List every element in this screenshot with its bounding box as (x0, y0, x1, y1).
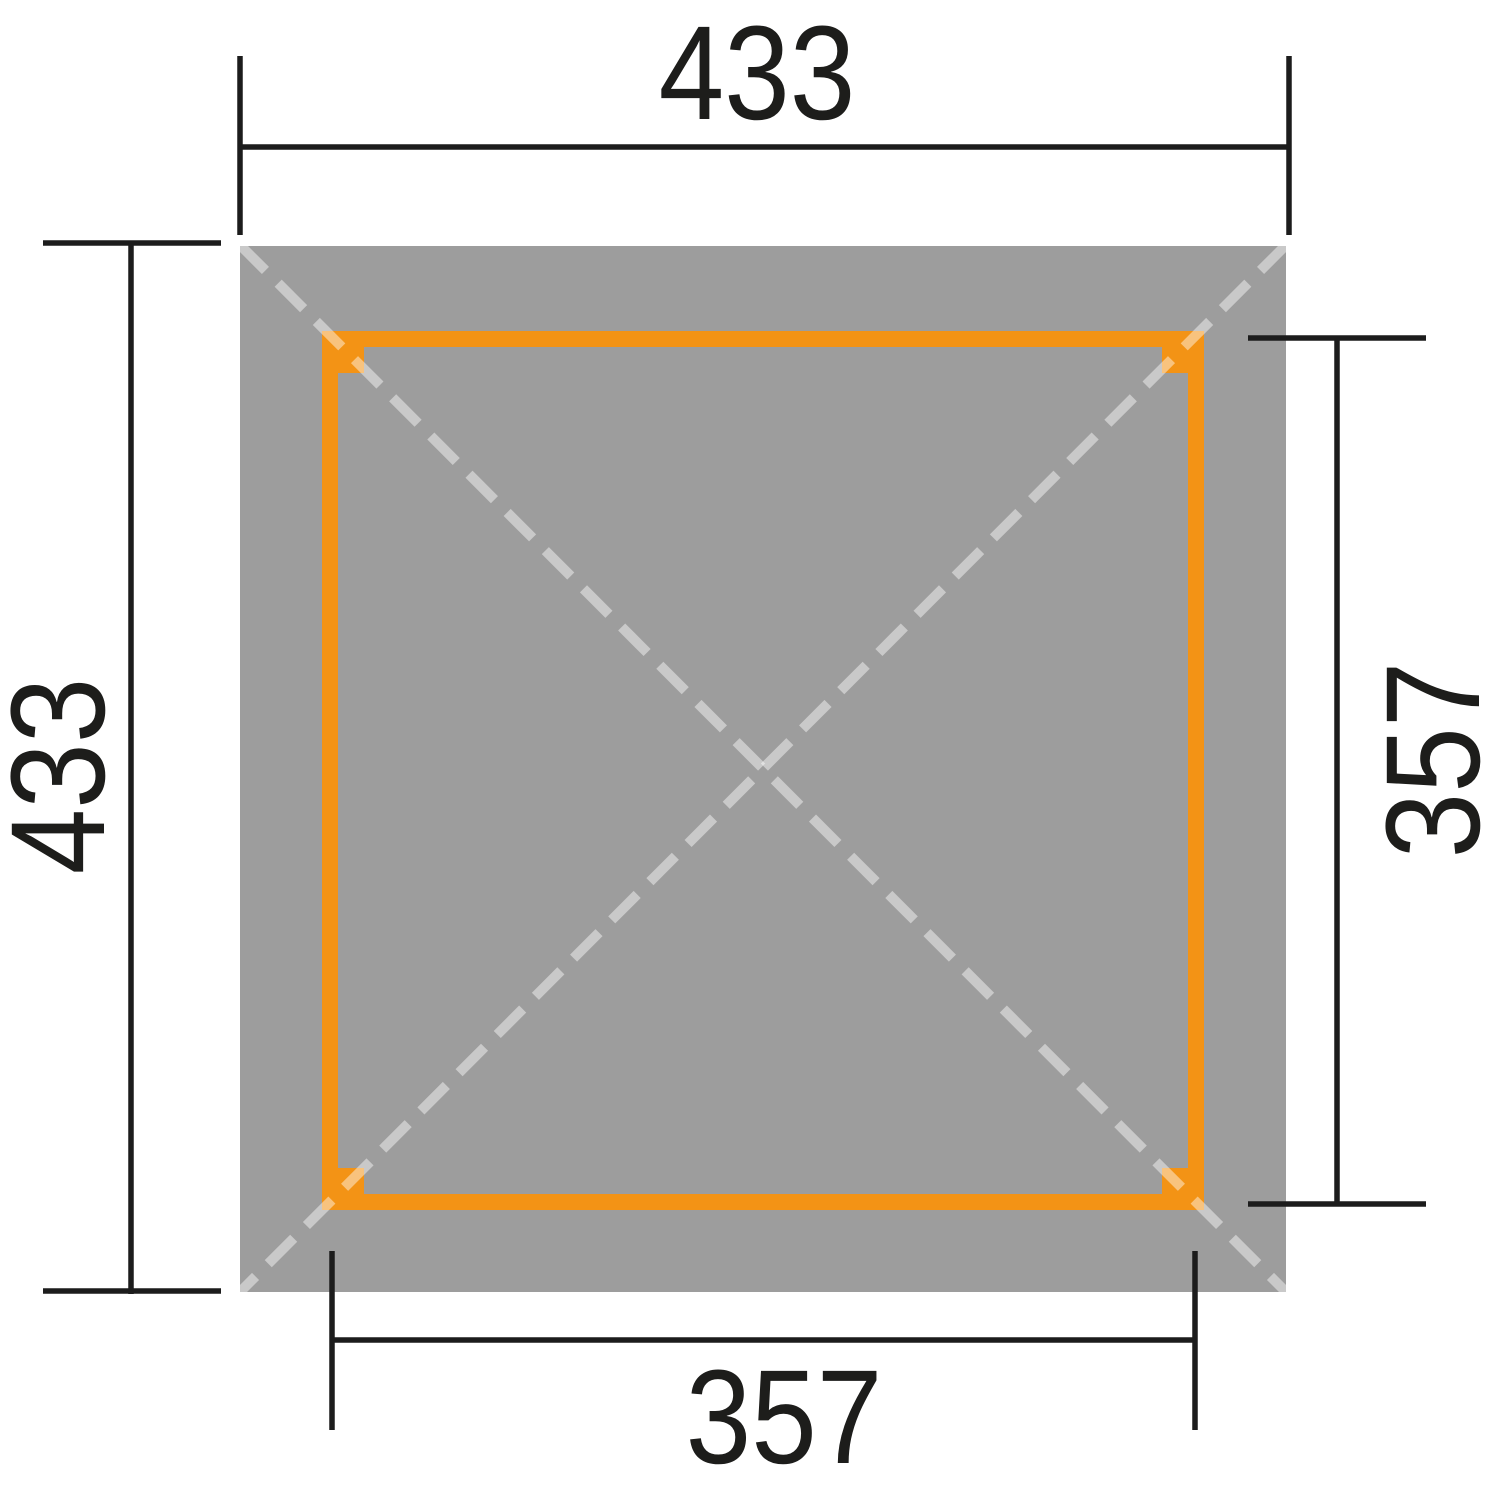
svg-text:357: 357 (1358, 662, 1500, 859)
svg-text:433: 433 (659, 0, 856, 148)
svg-text:357: 357 (686, 1342, 883, 1492)
svg-text:433: 433 (0, 678, 133, 875)
